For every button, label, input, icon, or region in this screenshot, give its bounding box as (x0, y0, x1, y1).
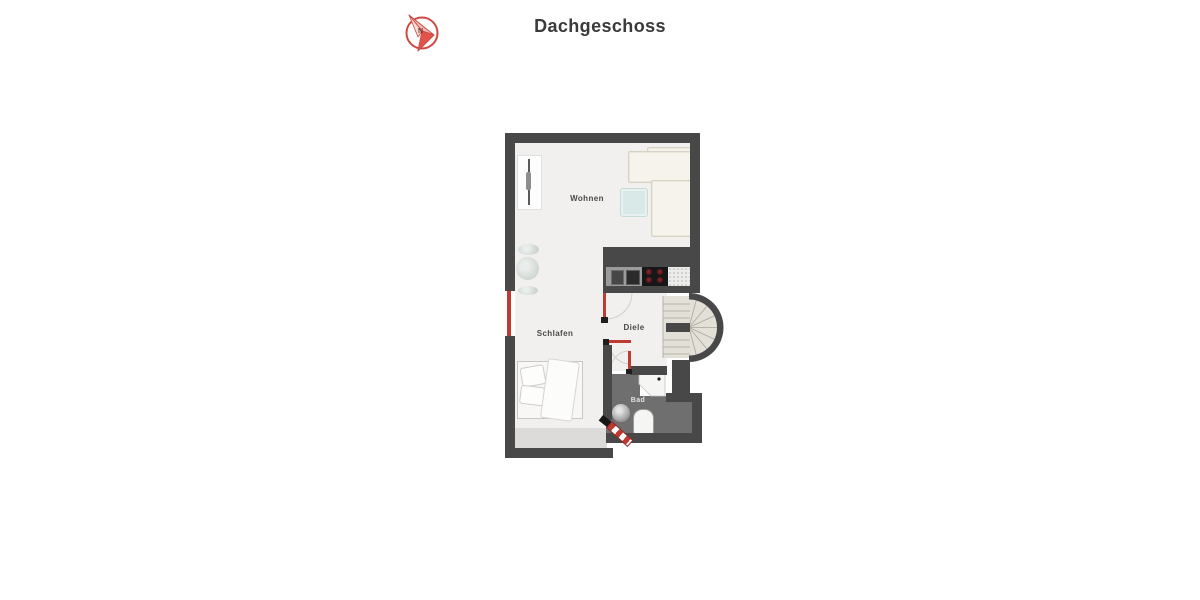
plant (518, 286, 538, 295)
wall-below-staircase (672, 360, 690, 395)
window-marker-left (507, 291, 511, 336)
wall-left-lower (505, 336, 515, 458)
spiral-staircase (663, 293, 724, 362)
compass-north-letter: N (418, 28, 423, 35)
plant (518, 244, 539, 255)
page-title: Dachgeschoss (0, 16, 1200, 37)
shower (639, 372, 665, 396)
sofa-seat-top (628, 151, 692, 183)
radiator (517, 155, 542, 210)
wall-bottom (505, 448, 613, 458)
schlafen-shaded-floor-area (515, 428, 607, 448)
wall-diele-bad (630, 366, 667, 375)
floor-plan-page: Dachgeschoss N (0, 0, 1200, 600)
room-label-wohnen: Wohnen (557, 194, 617, 203)
sofa-seat-right (651, 180, 692, 237)
kitchen-worktop (668, 267, 690, 286)
coffee-table (620, 188, 648, 217)
staircase-landing-bar (666, 323, 690, 332)
wall-left-upper (505, 143, 515, 291)
wall-schlafen-diele (603, 345, 612, 420)
stove-cooktop (642, 267, 668, 286)
staircase-curved-wall (689, 293, 724, 362)
door-stop (603, 339, 609, 345)
shower-head-dot (657, 377, 660, 380)
kitchen-counter (603, 247, 692, 293)
bathroom-sink (611, 403, 631, 423)
kitchen-sink-unit (606, 267, 642, 286)
wall-right (690, 143, 700, 293)
door-stop (626, 369, 632, 374)
plant (516, 257, 539, 280)
door-leaf-wohnen-diele (603, 293, 606, 319)
room-diele-floor (606, 293, 667, 371)
door-leaf-schlafen-diele (608, 340, 631, 343)
toilet (633, 409, 654, 435)
room-label-schlafen: Schlafen (525, 329, 585, 338)
room-label-bad: Bad (620, 397, 656, 404)
bed-duvet (540, 358, 580, 422)
door-stop (601, 317, 608, 323)
north-arrow-compass-icon: N (401, 7, 443, 53)
room-label-diele: Diele (610, 323, 658, 332)
bed (517, 361, 583, 419)
door-leaf-diele-bad (628, 351, 631, 369)
wall-top (505, 133, 700, 143)
